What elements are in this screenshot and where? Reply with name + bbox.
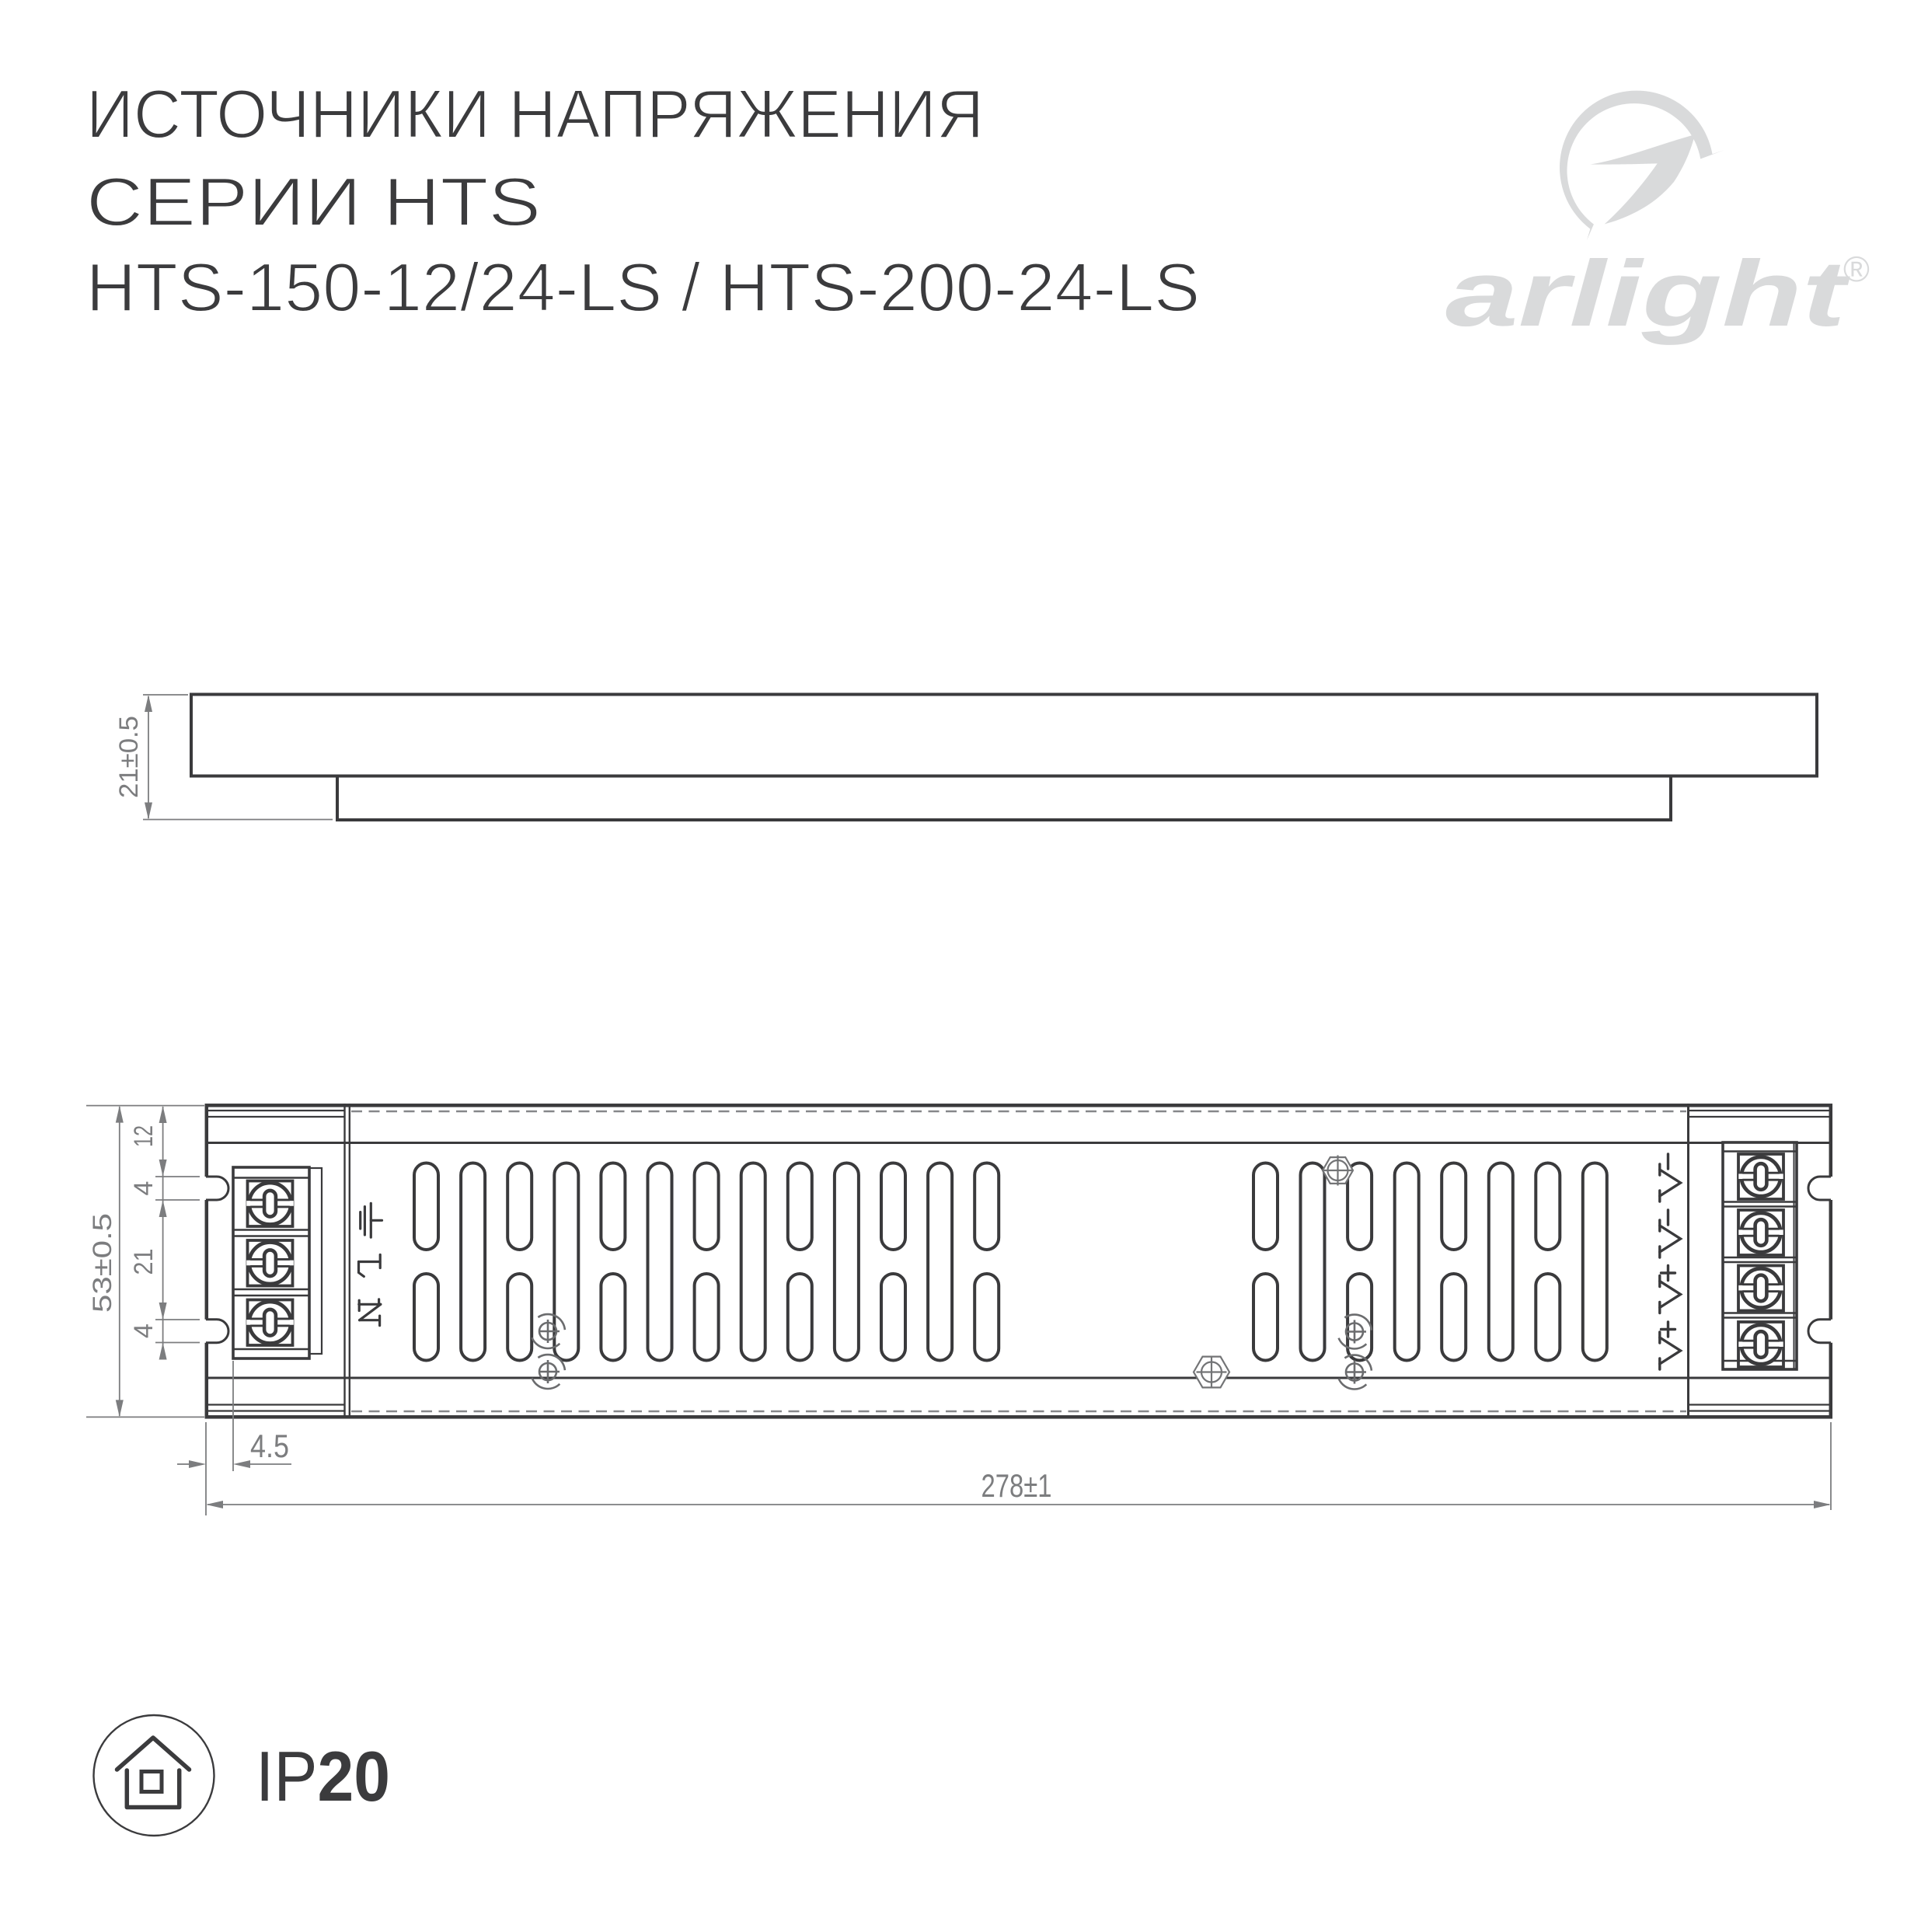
svg-text:21±0.5: 21±0.5 bbox=[114, 716, 144, 798]
svg-text:4: 4 bbox=[129, 1181, 159, 1196]
svg-text:®: ® bbox=[1843, 249, 1870, 289]
svg-text:ИСТОЧНИКИ НАПРЯЖЕНИЯ: ИСТОЧНИКИ НАПРЯЖЕНИЯ bbox=[86, 75, 984, 152]
svg-text:4.5: 4.5 bbox=[250, 1428, 289, 1464]
svg-text:4: 4 bbox=[129, 1323, 159, 1338]
svg-text:СЕРИИ HTS: СЕРИИ HTS bbox=[86, 163, 541, 240]
svg-text:IP20: IP20 bbox=[256, 1738, 390, 1816]
svg-text:HTS-150-12/24-LS / HTS-200-24-: HTS-150-12/24-LS / HTS-200-24-LS bbox=[86, 249, 1200, 326]
svg-text:arlight: arlight bbox=[1445, 242, 1851, 346]
svg-text:278±1: 278±1 bbox=[981, 1467, 1052, 1504]
svg-text:12: 12 bbox=[129, 1125, 159, 1147]
svg-text:53±0.5: 53±0.5 bbox=[88, 1213, 117, 1313]
svg-text:21: 21 bbox=[129, 1249, 159, 1275]
